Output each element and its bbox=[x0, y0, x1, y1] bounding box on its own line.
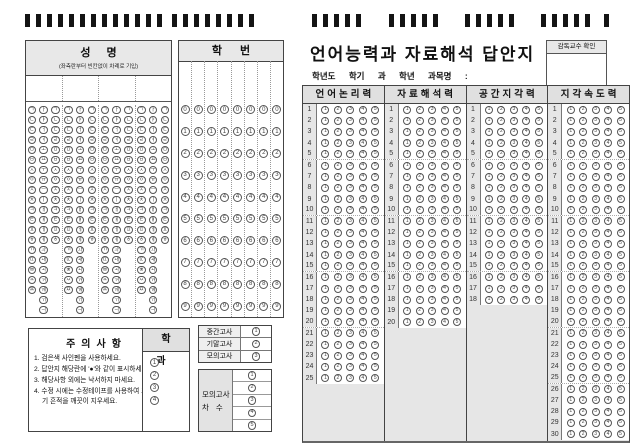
digit-bubble[interactable]: 4 bbox=[246, 193, 255, 202]
choice-bubble[interactable]: 1 bbox=[403, 262, 411, 270]
choice-bubble[interactable]: 3 bbox=[346, 195, 354, 203]
choice-bubble[interactable]: 4 bbox=[441, 150, 449, 158]
jamo-bubble[interactable]: ㅋ bbox=[28, 206, 37, 215]
jamo-bubble[interactable]: ㅊ bbox=[101, 196, 110, 205]
choice-bubble[interactable]: 4 bbox=[522, 251, 530, 259]
choice-bubble[interactable]: 2 bbox=[579, 341, 587, 349]
digit-bubble[interactable]: 3 bbox=[259, 171, 268, 180]
choice-bubble[interactable]: 3 bbox=[346, 352, 354, 360]
choice-bubble[interactable]: 4 bbox=[359, 285, 367, 293]
choice-bubble[interactable]: 1 bbox=[567, 341, 575, 349]
digit-bubble[interactable]: 1 bbox=[272, 127, 281, 136]
choice-bubble[interactable]: 3 bbox=[346, 217, 354, 225]
choice-bubble[interactable]: 4 bbox=[604, 195, 612, 203]
choice-bubble[interactable]: 2 bbox=[579, 150, 587, 158]
choice-bubble[interactable]: 2 bbox=[579, 173, 587, 181]
choice-bubble[interactable]: 1 bbox=[485, 106, 493, 114]
choice-bubble[interactable]: 3 bbox=[346, 206, 354, 214]
jamo-bubble[interactable]: ㅂ bbox=[28, 156, 37, 165]
jamo-bubble[interactable]: ㅁ bbox=[101, 146, 110, 155]
choice-bubble[interactable]: 3 bbox=[346, 229, 354, 237]
digit-bubble[interactable]: 2 bbox=[259, 149, 268, 158]
choice-bubble[interactable]: 1 bbox=[567, 318, 575, 326]
choice-bubble[interactable]: 4 bbox=[441, 195, 449, 203]
choice-bubble[interactable]: 4 bbox=[604, 285, 612, 293]
choice-bubble[interactable]: 4 bbox=[359, 296, 367, 304]
jamo-bubble[interactable]: ㄸ bbox=[137, 256, 146, 265]
choice-bubble[interactable]: 4 bbox=[604, 374, 612, 382]
choice-bubble[interactable]: 3 bbox=[592, 341, 600, 349]
choice-bubble[interactable]: 5 bbox=[617, 150, 625, 158]
jamo-bubble[interactable]: ㅡ bbox=[149, 186, 158, 195]
choice-bubble[interactable]: 4 bbox=[604, 139, 612, 147]
choice-bubble[interactable]: 4 bbox=[604, 150, 612, 158]
jamo-bubble[interactable]: ㅢ bbox=[76, 306, 85, 315]
choice-bubble[interactable]: 4 bbox=[522, 117, 530, 125]
choice-bubble[interactable]: 3 bbox=[346, 273, 354, 281]
choice-bubble[interactable]: 3 bbox=[428, 285, 436, 293]
jamo-bubble[interactable]: ㅊ bbox=[88, 196, 97, 205]
choice-bubble[interactable]: 3 bbox=[428, 106, 436, 114]
choice-bubble[interactable]: 5 bbox=[617, 296, 625, 304]
choice-bubble[interactable]: 1 bbox=[321, 106, 329, 114]
choice-bubble[interactable]: 5 bbox=[617, 229, 625, 237]
choice-bubble[interactable]: 2 bbox=[497, 117, 505, 125]
choice-bubble[interactable]: 5 bbox=[371, 195, 379, 203]
choice-bubble[interactable]: 3 bbox=[428, 195, 436, 203]
choice-bubble[interactable]: 2 bbox=[497, 285, 505, 293]
choice-bubble[interactable]: 3 bbox=[346, 285, 354, 293]
choice-bubble[interactable]: 4 bbox=[522, 139, 530, 147]
jamo-bubble[interactable]: ㅌ bbox=[101, 216, 110, 225]
jamo-bubble[interactable]: ㄷ bbox=[124, 126, 133, 135]
choice-bubble[interactable]: 3 bbox=[510, 117, 518, 125]
choice-bubble[interactable]: 1 bbox=[321, 150, 329, 158]
jamo-bubble[interactable]: ㄴ bbox=[124, 116, 133, 125]
choice-bubble[interactable]: 3 bbox=[592, 318, 600, 326]
jamo-bubble[interactable]: ㄲ bbox=[28, 246, 37, 255]
choice-bubble[interactable]: 2 bbox=[334, 329, 342, 337]
choice-bubble[interactable]: 1 bbox=[321, 229, 329, 237]
choice-bubble[interactable]: 2 bbox=[334, 150, 342, 158]
choice-bubble[interactable]: 2 bbox=[334, 240, 342, 248]
choice-bubble[interactable]: 3 bbox=[428, 139, 436, 147]
jamo-bubble[interactable]: ㅕ bbox=[76, 136, 85, 145]
choice-bubble[interactable]: 2 bbox=[579, 262, 587, 270]
jamo-bubble[interactable]: ㅓ bbox=[76, 126, 85, 135]
choice-bubble[interactable]: 5 bbox=[535, 285, 543, 293]
jamo-bubble[interactable]: ㅈ bbox=[137, 186, 146, 195]
choice-bubble[interactable]: 4 bbox=[359, 318, 367, 326]
jamo-bubble[interactable]: ㅚ bbox=[112, 266, 121, 275]
choice-bubble[interactable]: 5 bbox=[617, 106, 625, 114]
choice-bubble[interactable]: 1 bbox=[567, 184, 575, 192]
choice-bubble[interactable]: 4 bbox=[441, 117, 449, 125]
choice-bubble[interactable]: 3 bbox=[592, 173, 600, 181]
digit-bubble[interactable]: 2 bbox=[272, 149, 281, 158]
choice-bubble[interactable]: 3 bbox=[510, 206, 518, 214]
choice-bubble[interactable]: 2 bbox=[416, 229, 424, 237]
choice-bubble[interactable]: 3 bbox=[346, 128, 354, 136]
jamo-bubble[interactable]: ㅠ bbox=[149, 176, 158, 185]
digit-bubble[interactable]: 8 bbox=[207, 280, 216, 289]
choice-bubble[interactable]: 1 bbox=[321, 329, 329, 337]
digit-bubble[interactable]: 4 bbox=[272, 193, 281, 202]
choice-bubble[interactable]: 3 bbox=[346, 162, 354, 170]
choice-bubble[interactable]: 2 bbox=[334, 229, 342, 237]
choice-bubble[interactable]: 2 bbox=[334, 285, 342, 293]
jamo-bubble[interactable]: ㅇ bbox=[28, 176, 37, 185]
choice-bubble[interactable]: 3 bbox=[510, 296, 518, 304]
digit-bubble[interactable]: 1 bbox=[220, 127, 229, 136]
choice-bubble[interactable]: 2 bbox=[334, 195, 342, 203]
choice-bubble[interactable]: 5 bbox=[617, 240, 625, 248]
jamo-bubble[interactable]: ㅚ bbox=[76, 266, 85, 275]
choice-bubble[interactable]: 5 bbox=[535, 117, 543, 125]
jamo-bubble[interactable]: ㅁ bbox=[28, 146, 37, 155]
choice-bubble[interactable]: 3 bbox=[346, 329, 354, 337]
jamo-bubble[interactable]: ㅍ bbox=[51, 226, 60, 235]
jamo-bubble[interactable]: ㅡ bbox=[39, 186, 48, 195]
choice-bubble[interactable]: 5 bbox=[453, 106, 461, 114]
jamo-bubble[interactable]: ㄴ bbox=[137, 116, 146, 125]
choice-bubble[interactable]: 5 bbox=[535, 162, 543, 170]
choice-bubble[interactable]: 5 bbox=[617, 430, 625, 438]
choice-bubble[interactable]: 3 bbox=[592, 396, 600, 404]
choice-bubble[interactable]: 4 bbox=[441, 173, 449, 181]
choice-bubble[interactable]: 3 bbox=[592, 240, 600, 248]
choice-bubble[interactable]: 5 bbox=[617, 374, 625, 382]
choice-bubble[interactable]: 4 bbox=[359, 217, 367, 225]
jamo-bubble[interactable]: ㅟ bbox=[76, 296, 85, 305]
digit-bubble[interactable]: 7 bbox=[259, 258, 268, 267]
digit-bubble[interactable]: 5 bbox=[246, 214, 255, 223]
digit-bubble[interactable]: 6 bbox=[181, 236, 190, 245]
choice-bubble[interactable]: 3 bbox=[346, 341, 354, 349]
choice-bubble[interactable]: 5 bbox=[617, 195, 625, 203]
mock-round-bubble[interactable]: 1 bbox=[248, 371, 257, 380]
choice-bubble[interactable]: 5 bbox=[617, 184, 625, 192]
choice-bubble[interactable]: 2 bbox=[334, 217, 342, 225]
choice-bubble[interactable]: 1 bbox=[567, 206, 575, 214]
choice-bubble[interactable]: 2 bbox=[334, 162, 342, 170]
digit-bubble[interactable]: 6 bbox=[194, 236, 203, 245]
choice-bubble[interactable]: 1 bbox=[321, 195, 329, 203]
choice-bubble[interactable]: 3 bbox=[592, 117, 600, 125]
choice-bubble[interactable]: 4 bbox=[604, 307, 612, 315]
jamo-bubble[interactable]: ㅋ bbox=[51, 206, 60, 215]
choice-bubble[interactable]: 1 bbox=[567, 195, 575, 203]
jamo-bubble[interactable]: ㅃ bbox=[137, 266, 146, 275]
jamo-bubble[interactable]: ㅉ bbox=[137, 286, 146, 295]
digit-bubble[interactable]: 1 bbox=[246, 127, 255, 136]
choice-bubble[interactable]: 1 bbox=[567, 150, 575, 158]
jamo-bubble[interactable]: ㅅ bbox=[28, 166, 37, 175]
jamo-bubble[interactable]: ㅍ bbox=[101, 226, 110, 235]
jamo-bubble[interactable]: ㅈ bbox=[124, 186, 133, 195]
mock-round-bubble[interactable]: 4 bbox=[248, 409, 257, 418]
choice-bubble[interactable]: 5 bbox=[617, 408, 625, 416]
choice-bubble[interactable]: 1 bbox=[403, 195, 411, 203]
jamo-bubble[interactable]: ㅡ bbox=[112, 186, 121, 195]
digit-bubble[interactable]: 9 bbox=[194, 302, 203, 311]
digit-bubble[interactable]: 0 bbox=[246, 105, 255, 114]
choice-bubble[interactable]: 1 bbox=[321, 162, 329, 170]
choice-bubble[interactable]: 3 bbox=[428, 150, 436, 158]
choice-bubble[interactable]: 4 bbox=[522, 262, 530, 270]
choice-bubble[interactable]: 5 bbox=[617, 273, 625, 281]
choice-bubble[interactable]: 5 bbox=[535, 251, 543, 259]
digit-bubble[interactable]: 5 bbox=[272, 214, 281, 223]
choice-bubble[interactable]: 3 bbox=[592, 408, 600, 416]
digit-bubble[interactable]: 3 bbox=[233, 171, 242, 180]
choice-bubble[interactable]: 1 bbox=[567, 229, 575, 237]
jamo-bubble[interactable]: ㅎ bbox=[137, 236, 146, 245]
digit-bubble[interactable]: 8 bbox=[220, 280, 229, 289]
choice-bubble[interactable]: 1 bbox=[321, 273, 329, 281]
jamo-bubble[interactable]: ㅌ bbox=[124, 216, 133, 225]
jamo-bubble[interactable]: ㅁ bbox=[137, 146, 146, 155]
jamo-bubble[interactable]: ㅇ bbox=[124, 176, 133, 185]
digit-bubble[interactable]: 2 bbox=[194, 149, 203, 158]
choice-bubble[interactable]: 3 bbox=[346, 363, 354, 371]
name-write-cell[interactable] bbox=[63, 76, 100, 101]
choice-bubble[interactable]: 1 bbox=[567, 173, 575, 181]
name-write-cell[interactable] bbox=[26, 76, 63, 101]
digit-bubble[interactable]: 7 bbox=[207, 258, 216, 267]
digit-bubble[interactable]: 6 bbox=[233, 236, 242, 245]
jamo-bubble[interactable]: ㄷ bbox=[161, 126, 170, 135]
jamo-bubble[interactable]: ㅝ bbox=[39, 276, 48, 285]
choice-bubble[interactable]: 4 bbox=[359, 150, 367, 158]
choice-bubble[interactable]: 1 bbox=[567, 217, 575, 225]
choice-bubble[interactable]: 5 bbox=[535, 273, 543, 281]
choice-bubble[interactable]: 2 bbox=[334, 184, 342, 192]
jamo-bubble[interactable]: ㅆ bbox=[28, 276, 37, 285]
choice-bubble[interactable]: 5 bbox=[371, 285, 379, 293]
choice-bubble[interactable]: 4 bbox=[604, 229, 612, 237]
choice-bubble[interactable]: 1 bbox=[403, 217, 411, 225]
jamo-bubble[interactable]: ㄱ bbox=[51, 106, 60, 115]
jamo-bubble[interactable]: ㅒ bbox=[76, 216, 85, 225]
choice-bubble[interactable]: 5 bbox=[453, 307, 461, 315]
choice-bubble[interactable]: 4 bbox=[604, 162, 612, 170]
choice-bubble[interactable]: 3 bbox=[592, 374, 600, 382]
choice-bubble[interactable]: 2 bbox=[579, 296, 587, 304]
choice-bubble[interactable]: 2 bbox=[416, 251, 424, 259]
jamo-bubble[interactable]: ㅛ bbox=[149, 156, 158, 165]
choice-bubble[interactable]: 3 bbox=[428, 251, 436, 259]
choice-bubble[interactable]: 2 bbox=[334, 374, 342, 382]
choice-bubble[interactable]: 5 bbox=[535, 184, 543, 192]
choice-bubble[interactable]: 3 bbox=[428, 273, 436, 281]
jamo-bubble[interactable]: ㅁ bbox=[88, 146, 97, 155]
choice-bubble[interactable]: 3 bbox=[428, 229, 436, 237]
jamo-bubble[interactable]: ㅢ bbox=[149, 306, 158, 315]
choice-bubble[interactable]: 3 bbox=[592, 128, 600, 136]
jamo-bubble[interactable]: ㅈ bbox=[64, 186, 73, 195]
choice-bubble[interactable]: 1 bbox=[485, 195, 493, 203]
choice-bubble[interactable]: 5 bbox=[617, 162, 625, 170]
choice-bubble[interactable]: 3 bbox=[428, 117, 436, 125]
choice-bubble[interactable]: 1 bbox=[567, 430, 575, 438]
jamo-bubble[interactable]: ㅈ bbox=[88, 186, 97, 195]
choice-bubble[interactable]: 3 bbox=[510, 240, 518, 248]
choice-bubble[interactable]: 4 bbox=[359, 139, 367, 147]
choice-bubble[interactable]: 2 bbox=[497, 229, 505, 237]
jamo-bubble[interactable]: ㅅ bbox=[88, 166, 97, 175]
choice-bubble[interactable]: 4 bbox=[359, 173, 367, 181]
choice-bubble[interactable]: 4 bbox=[604, 363, 612, 371]
choice-bubble[interactable]: 1 bbox=[403, 206, 411, 214]
jamo-bubble[interactable]: ㅔ bbox=[39, 226, 48, 235]
choice-bubble[interactable]: 1 bbox=[321, 352, 329, 360]
choice-bubble[interactable]: 5 bbox=[371, 374, 379, 382]
choice-bubble[interactable]: 4 bbox=[522, 162, 530, 170]
choice-bubble[interactable]: 5 bbox=[371, 184, 379, 192]
choice-bubble[interactable]: 3 bbox=[592, 419, 600, 427]
choice-bubble[interactable]: 5 bbox=[453, 229, 461, 237]
choice-bubble[interactable]: 1 bbox=[403, 318, 411, 326]
choice-bubble[interactable]: 2 bbox=[579, 285, 587, 293]
choice-bubble[interactable]: 1 bbox=[321, 262, 329, 270]
choice-bubble[interactable]: 2 bbox=[334, 307, 342, 315]
jamo-bubble[interactable]: ㅂ bbox=[124, 156, 133, 165]
choice-bubble[interactable]: 2 bbox=[416, 150, 424, 158]
jamo-bubble[interactable]: ㅑ bbox=[112, 116, 121, 125]
choice-bubble[interactable]: 4 bbox=[604, 206, 612, 214]
choice-bubble[interactable]: 1 bbox=[321, 363, 329, 371]
jamo-bubble[interactable]: ㅗ bbox=[112, 146, 121, 155]
choice-bubble[interactable]: 3 bbox=[510, 173, 518, 181]
choice-bubble[interactable]: 3 bbox=[346, 173, 354, 181]
jamo-bubble[interactable]: ㅊ bbox=[161, 196, 170, 205]
jamo-bubble[interactable]: ㅎ bbox=[64, 236, 73, 245]
choice-bubble[interactable]: 4 bbox=[522, 296, 530, 304]
digit-bubble[interactable]: 7 bbox=[194, 258, 203, 267]
jamo-bubble[interactable]: ㅃ bbox=[28, 266, 37, 275]
jamo-bubble[interactable]: ㄷ bbox=[88, 126, 97, 135]
jamo-bubble[interactable]: ㅘ bbox=[76, 246, 85, 255]
jamo-bubble[interactable]: ㅁ bbox=[161, 146, 170, 155]
choice-bubble[interactable]: 1 bbox=[485, 117, 493, 125]
choice-bubble[interactable]: 5 bbox=[617, 318, 625, 326]
choice-bubble[interactable]: 1 bbox=[403, 128, 411, 136]
choice-bubble[interactable]: 3 bbox=[346, 117, 354, 125]
jamo-bubble[interactable]: ㅌ bbox=[137, 216, 146, 225]
digit-bubble[interactable]: 4 bbox=[181, 193, 190, 202]
choice-bubble[interactable]: 2 bbox=[579, 430, 587, 438]
choice-bubble[interactable]: 2 bbox=[416, 206, 424, 214]
jamo-bubble[interactable]: ㅌ bbox=[51, 216, 60, 225]
jamo-bubble[interactable]: ㅡ bbox=[76, 186, 85, 195]
jamo-bubble[interactable]: ㅞ bbox=[76, 286, 85, 295]
choice-bubble[interactable]: 4 bbox=[441, 285, 449, 293]
choice-bubble[interactable]: 2 bbox=[497, 273, 505, 281]
jamo-bubble[interactable]: ㅇ bbox=[88, 176, 97, 185]
choice-bubble[interactable]: 5 bbox=[453, 150, 461, 158]
choice-bubble[interactable]: 5 bbox=[371, 139, 379, 147]
digit-bubble[interactable]: 1 bbox=[194, 127, 203, 136]
jamo-bubble[interactable]: ㅌ bbox=[64, 216, 73, 225]
jamo-bubble[interactable]: ㅅ bbox=[137, 166, 146, 175]
choice-bubble[interactable]: 1 bbox=[567, 162, 575, 170]
jamo-bubble[interactable]: ㄱ bbox=[28, 106, 37, 115]
choice-bubble[interactable]: 5 bbox=[617, 285, 625, 293]
choice-bubble[interactable]: 1 bbox=[321, 251, 329, 259]
digit-bubble[interactable]: 7 bbox=[220, 258, 229, 267]
choice-bubble[interactable]: 1 bbox=[321, 374, 329, 382]
name-write-cell[interactable] bbox=[136, 76, 172, 101]
choice-bubble[interactable]: 4 bbox=[604, 217, 612, 225]
choice-bubble[interactable]: 5 bbox=[453, 173, 461, 181]
digit-bubble[interactable]: 0 bbox=[233, 105, 242, 114]
jamo-bubble[interactable]: ㅎ bbox=[88, 236, 97, 245]
choice-bubble[interactable]: 3 bbox=[428, 128, 436, 136]
choice-bubble[interactable]: 2 bbox=[416, 307, 424, 315]
jamo-bubble[interactable]: ㅇ bbox=[161, 176, 170, 185]
jamo-bubble[interactable]: ㅕ bbox=[39, 136, 48, 145]
choice-bubble[interactable]: 4 bbox=[604, 184, 612, 192]
choice-bubble[interactable]: 5 bbox=[371, 262, 379, 270]
choice-bubble[interactable]: 2 bbox=[334, 262, 342, 270]
choice-bubble[interactable]: 5 bbox=[453, 162, 461, 170]
jamo-bubble[interactable]: ㅋ bbox=[101, 206, 110, 215]
jamo-bubble[interactable]: ㅆ bbox=[64, 276, 73, 285]
jamo-bubble[interactable]: ㅖ bbox=[76, 236, 85, 245]
choice-bubble[interactable]: 3 bbox=[592, 262, 600, 270]
choice-bubble[interactable]: 3 bbox=[346, 150, 354, 158]
choice-bubble[interactable]: 4 bbox=[441, 251, 449, 259]
choice-bubble[interactable]: 4 bbox=[604, 128, 612, 136]
choice-bubble[interactable]: 5 bbox=[617, 139, 625, 147]
name-write-area[interactable] bbox=[26, 76, 171, 102]
choice-bubble[interactable]: 4 bbox=[604, 329, 612, 337]
choice-bubble[interactable]: 4 bbox=[522, 229, 530, 237]
choice-bubble[interactable]: 4 bbox=[359, 329, 367, 337]
digit-bubble[interactable]: 6 bbox=[207, 236, 216, 245]
choice-bubble[interactable]: 3 bbox=[592, 273, 600, 281]
jamo-bubble[interactable]: ㅐ bbox=[39, 206, 48, 215]
jamo-bubble[interactable]: ㅣ bbox=[112, 196, 121, 205]
digit-bubble[interactable]: 6 bbox=[272, 236, 281, 245]
choice-bubble[interactable]: 5 bbox=[535, 262, 543, 270]
choice-bubble[interactable]: 2 bbox=[579, 251, 587, 259]
choice-bubble[interactable]: 2 bbox=[579, 408, 587, 416]
choice-bubble[interactable]: 2 bbox=[579, 318, 587, 326]
choice-bubble[interactable]: 1 bbox=[403, 139, 411, 147]
choice-bubble[interactable]: 4 bbox=[441, 229, 449, 237]
jamo-bubble[interactable]: ㅘ bbox=[149, 246, 158, 255]
choice-bubble[interactable]: 1 bbox=[403, 173, 411, 181]
digit-bubble[interactable]: 1 bbox=[181, 127, 190, 136]
digit-bubble[interactable]: 9 bbox=[181, 302, 190, 311]
choice-bubble[interactable]: 5 bbox=[617, 385, 625, 393]
choice-bubble[interactable]: 4 bbox=[441, 206, 449, 214]
choice-bubble[interactable]: 2 bbox=[497, 162, 505, 170]
choice-bubble[interactable]: 4 bbox=[441, 296, 449, 304]
choice-bubble[interactable]: 5 bbox=[453, 285, 461, 293]
choice-bubble[interactable]: 3 bbox=[428, 162, 436, 170]
jamo-bubble[interactable]: ㄷ bbox=[137, 126, 146, 135]
choice-bubble[interactable]: 4 bbox=[522, 128, 530, 136]
choice-bubble[interactable]: 3 bbox=[346, 296, 354, 304]
choice-bubble[interactable]: 4 bbox=[441, 240, 449, 248]
jamo-bubble[interactable]: ㅘ bbox=[39, 246, 48, 255]
choice-bubble[interactable]: 4 bbox=[359, 206, 367, 214]
digit-bubble[interactable]: 5 bbox=[233, 214, 242, 223]
choice-bubble[interactable]: 4 bbox=[441, 128, 449, 136]
